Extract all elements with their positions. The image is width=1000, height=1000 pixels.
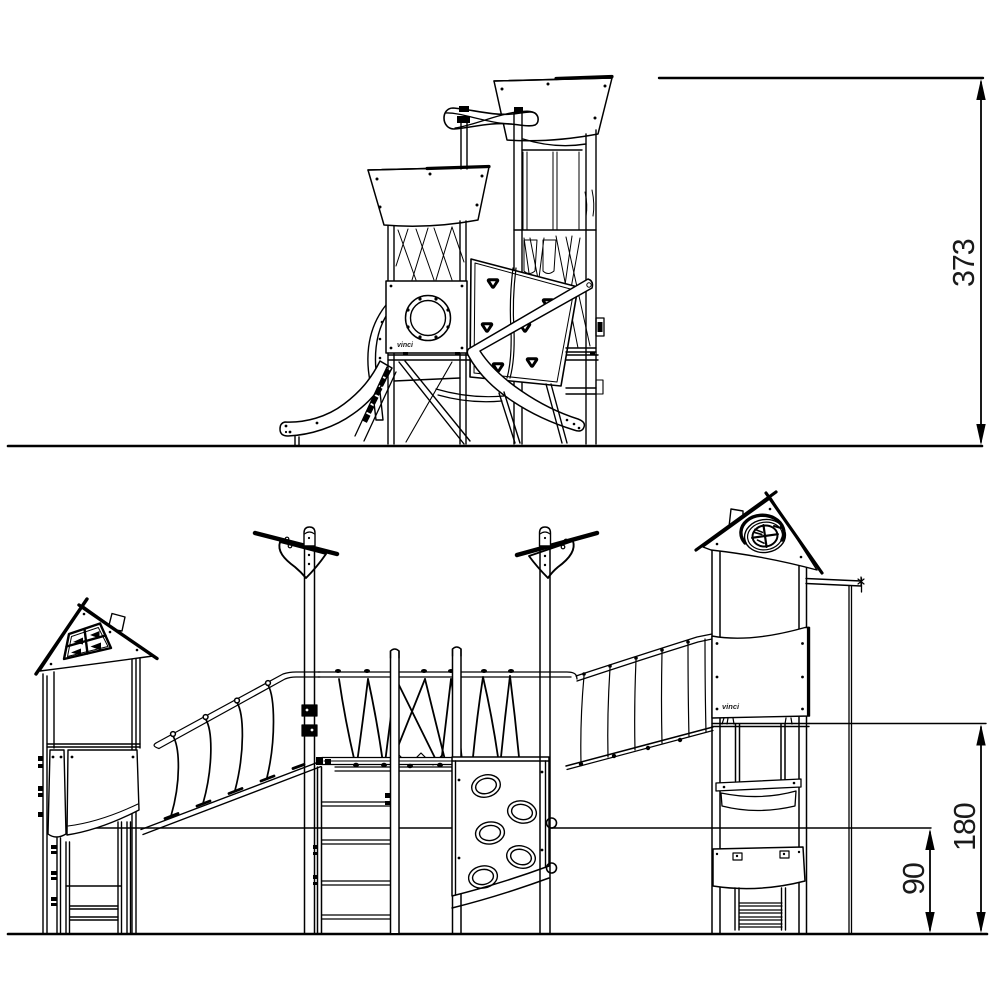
svg-text:180: 180	[948, 803, 982, 851]
svg-text:vinci: vinci	[722, 702, 740, 711]
svg-text:373: 373	[947, 239, 981, 287]
svg-text:90: 90	[897, 863, 931, 895]
svg-text:vinci: vinci	[397, 342, 414, 349]
